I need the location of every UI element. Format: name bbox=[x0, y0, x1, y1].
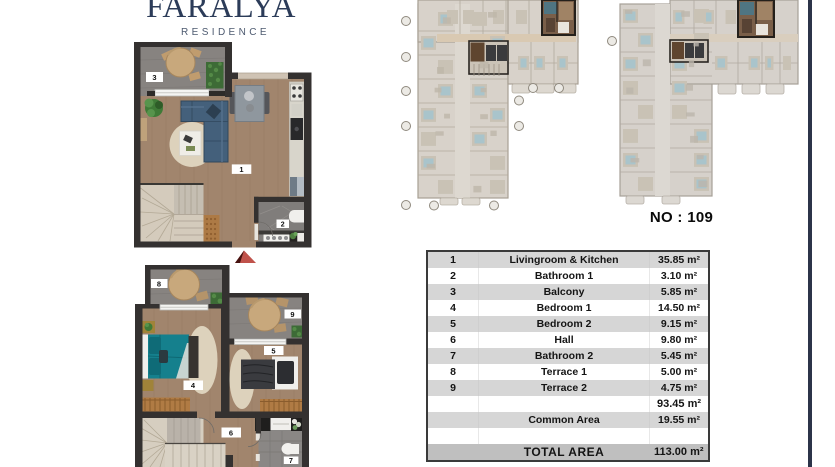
svg-text:3: 3 bbox=[152, 73, 156, 82]
svg-text:9: 9 bbox=[290, 310, 294, 319]
svg-text:6: 6 bbox=[229, 429, 233, 438]
svg-text:2: 2 bbox=[281, 222, 285, 229]
svg-text:7: 7 bbox=[289, 458, 293, 465]
svg-text:5: 5 bbox=[271, 346, 275, 355]
svg-text:1: 1 bbox=[239, 165, 243, 174]
svg-text:8: 8 bbox=[157, 279, 161, 288]
